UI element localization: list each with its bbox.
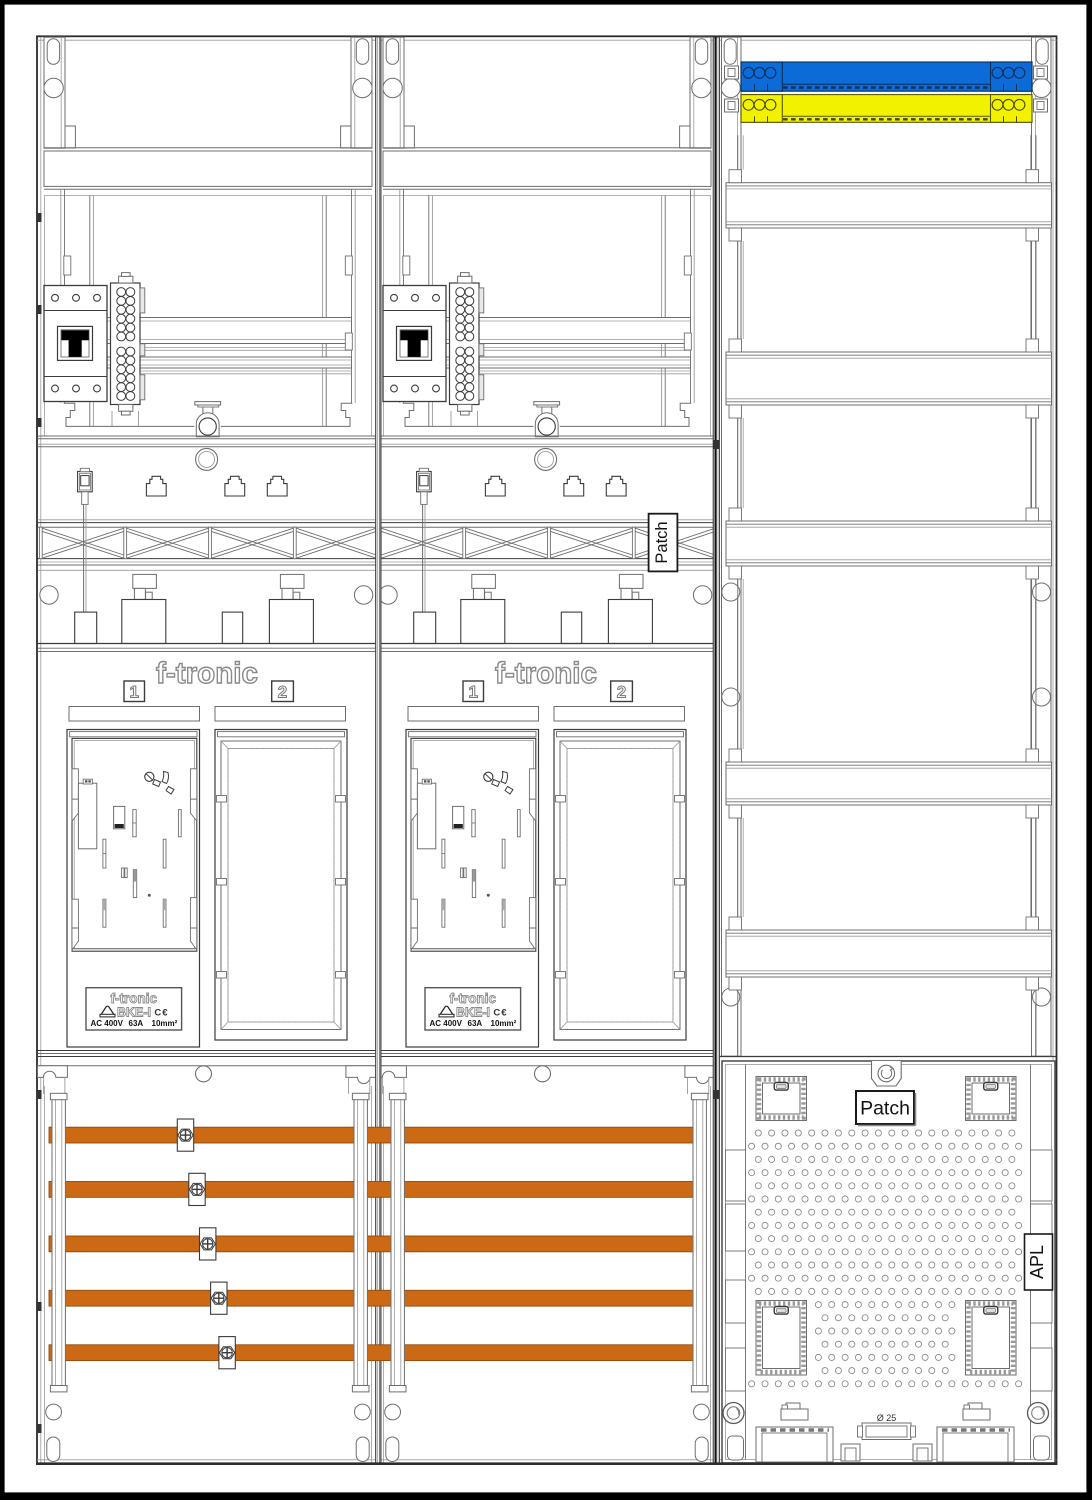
- svg-text:Patch: Patch: [653, 521, 671, 563]
- svg-text:Patch: Patch: [860, 1098, 910, 1120]
- svg-text:APL: APL: [1027, 1245, 1047, 1279]
- svg-text:Ø 25: Ø 25: [877, 1413, 897, 1423]
